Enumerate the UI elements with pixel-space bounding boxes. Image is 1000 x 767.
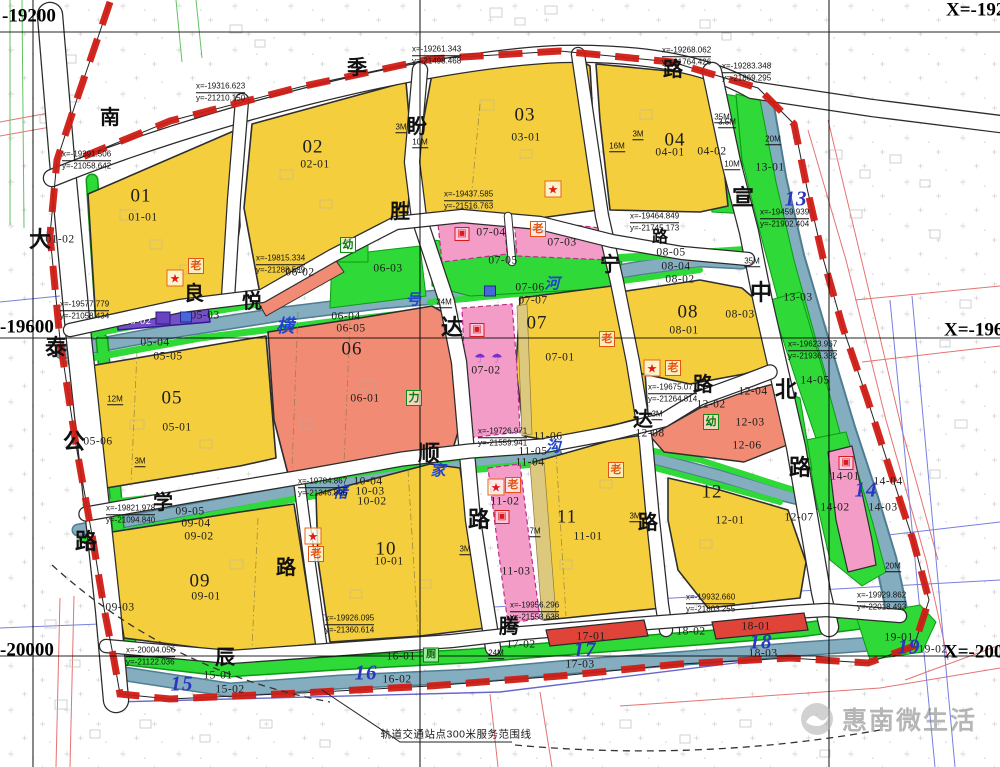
coord-annotation: x=-19675.077y=-21264.814: [648, 382, 697, 404]
block-label: 05-05: [153, 351, 182, 363]
coord-annotation: x=-19784.867y=-21346.896: [298, 476, 347, 498]
block-label: 12-03: [735, 417, 764, 429]
road-name-char: 路: [789, 457, 811, 479]
coord-annotation: x=-19464.849y=-21745.173: [630, 211, 679, 233]
block-label: 07-03: [547, 237, 576, 249]
block-label: 08-01: [669, 325, 698, 337]
coord-annotation: x=-19821.978y=-21094.840: [106, 503, 155, 525]
grid-coordinate-label: -19600: [0, 318, 54, 337]
block-label: 11-03: [502, 566, 531, 578]
block-label: 07-04: [476, 227, 505, 239]
dimension-label: 12M: [107, 395, 123, 405]
block-label: 17-02: [506, 639, 535, 651]
block-label: 07-01: [545, 352, 574, 364]
block-label: 09-04: [181, 518, 210, 530]
block-label: 08: [678, 303, 699, 322]
block-label: 08-05: [656, 247, 685, 259]
block-label: 10-04: [353, 476, 382, 488]
block-label: 14-03: [868, 502, 897, 514]
elder-care-icon: 老: [599, 331, 615, 347]
block-label: 06-03: [373, 263, 402, 275]
block-label: 17-03: [565, 659, 594, 671]
facility-box-icon: ▣: [455, 227, 470, 241]
coord-annotation: x=-19932.660y=-21803.255: [686, 592, 735, 614]
block-label: 04-01: [655, 147, 684, 159]
elder-care-icon: 老: [505, 477, 521, 493]
block-label: 15: [171, 674, 194, 695]
coord-annotation: x=-20004.056y=-21122.036: [126, 645, 175, 667]
block-label: 14-02: [820, 502, 849, 514]
grid-coordinate-label: -19200: [2, 7, 56, 26]
dome-icon: ☂: [474, 352, 486, 365]
block-label: 03: [515, 106, 536, 125]
block-label: 11-04: [516, 457, 545, 469]
road-name-char: 达: [633, 410, 653, 430]
road-name-char: 公: [63, 431, 85, 453]
road-name-char: 宁: [600, 255, 620, 275]
facility-box-icon: ▣: [839, 456, 854, 470]
dimension-label: 20M: [765, 135, 781, 145]
block-label: 10-01: [374, 556, 403, 568]
facility-box-icon: ▣: [495, 510, 510, 524]
dimension-label: 24M: [488, 649, 504, 659]
coord-annotation: x=-19623.967y=-21936.382: [788, 339, 837, 361]
coord-annotation: x=-19316.623y=-21210.150: [196, 81, 245, 103]
coord-annotation: x=-19815.334y=-21288.589: [256, 253, 305, 275]
road-name-char: 胜: [390, 202, 410, 222]
dimension-label: 3M: [651, 410, 662, 420]
road-name-char: 良: [184, 284, 204, 304]
block-label: 15-01: [203, 670, 232, 682]
elder-care-icon: 老: [665, 360, 681, 376]
block-label: 06-04: [331, 311, 360, 323]
block-label: 05-04: [140, 337, 169, 349]
river-name-char: 横: [276, 317, 294, 335]
road-name-char: 北: [775, 379, 797, 401]
block-label: 15-02: [215, 684, 244, 696]
block-label: 12-02: [696, 399, 725, 411]
dimension-label: 3M: [395, 123, 406, 133]
coord-annotation: x=-19459.939y=-21902.404: [760, 207, 809, 229]
block-label: 16-02: [382, 674, 411, 686]
block-label: 01-01: [128, 212, 157, 224]
dimension-label: 10M: [724, 160, 740, 170]
block-label: 06-05: [336, 323, 365, 335]
block-label: 05-03: [190, 310, 219, 322]
coord-annotation: x=-19268.062y=-21764.426: [662, 45, 711, 67]
block-label: 11-05: [519, 446, 548, 458]
block-label: 02: [303, 138, 324, 157]
block-label: 05-06: [83, 436, 112, 448]
block-label: 07-06: [515, 282, 544, 294]
elder-care-icon: 老: [530, 221, 546, 237]
star-landmark-icon: ★: [545, 181, 562, 198]
coord-annotation: x=-19956.296y=-21553.638: [510, 600, 559, 622]
block-label: 11-01: [574, 531, 603, 543]
block-label: 11: [557, 508, 577, 527]
coord-annotation: x=-19283.348y=-21869.295: [722, 61, 771, 83]
block-label: 07: [527, 314, 548, 333]
block-label: 16: [355, 663, 378, 684]
substation-icon: [156, 312, 171, 325]
coord-annotation: x=-19437.585y=-21516.763: [444, 189, 493, 211]
block-label: 09-05: [175, 506, 204, 518]
block-label: 03-01: [511, 132, 540, 144]
river-name-char: 河: [544, 278, 559, 293]
star-landmark-icon: ★: [488, 479, 505, 496]
utility-box-icon: [180, 312, 192, 323]
road-name-char: 路: [638, 513, 658, 533]
elder-care-icon: 老: [308, 546, 324, 562]
block-label: 12-07: [784, 512, 813, 524]
kindergarten-icon: 幼: [703, 414, 719, 430]
block-label: 06-01: [350, 393, 379, 405]
road-name-char: 大: [29, 229, 51, 251]
block-label: 12-06: [732, 440, 761, 452]
block-label: 07-07: [518, 295, 547, 307]
grid-coordinate-label: X=-19600: [944, 321, 1000, 340]
coord-annotation: x=-19391.506y=-21058.642: [62, 149, 111, 171]
block-label: 08-02: [665, 274, 694, 286]
road-name-char: 路: [276, 558, 296, 578]
dimension-label: 20M: [885, 562, 901, 572]
block-label: 09-02: [184, 531, 213, 543]
road-name-char: 学: [153, 493, 173, 513]
river-name-char: 号: [405, 294, 420, 309]
road-name-char: 中: [750, 282, 772, 304]
block-label: 12: [702, 483, 723, 502]
watermark: 惠南微生活: [798, 700, 977, 738]
road-name-char: 季: [347, 58, 367, 78]
grid-coordinate-label: X=-19200: [946, 1, 1000, 20]
dimension-label: 10M: [412, 138, 428, 148]
block-label: 08-03: [725, 309, 754, 321]
star-landmark-icon: ★: [167, 270, 184, 287]
block-label: 14-05: [800, 375, 829, 387]
dimension-label: 3M: [134, 457, 145, 467]
block-label: 05: [162, 389, 183, 408]
block-label: 07-05: [488, 255, 517, 267]
planning-map: 0102030405060708091011121314151617181901…: [0, 0, 1000, 767]
road-name-char: 达: [441, 317, 463, 339]
kindergarten-icon: 幼: [340, 237, 356, 253]
block-label: 18-01: [741, 621, 770, 633]
block-label: 09-03: [105, 602, 134, 614]
public-toilet-icon: 厕: [423, 648, 439, 663]
facility-box-icon: ▣: [470, 323, 485, 337]
block-label: 07-02: [471, 365, 500, 377]
block-label: 14-01: [830, 471, 859, 483]
star-landmark-icon: ★: [305, 528, 322, 545]
dimension-label: 3M: [632, 130, 643, 140]
dimension-label: 24M: [436, 298, 452, 308]
grid-coordinate-label: -20000: [0, 641, 54, 660]
dimension-label: 35M: [714, 113, 730, 123]
block-label: 10-03: [355, 486, 384, 498]
block-label: 05-01: [162, 422, 191, 434]
block-label: 16-01: [386, 651, 415, 663]
grid-coordinate-label: X=-20000: [944, 643, 1000, 662]
block-label: 11-02: [491, 496, 520, 508]
road-name-char: 路: [468, 509, 490, 531]
watermark-logo-icon: [798, 700, 836, 738]
road-name-char: 辰: [215, 648, 235, 668]
block-label: 18-02: [676, 626, 705, 638]
block-label: 19-01: [884, 632, 913, 644]
dimension-label: 3M: [629, 512, 640, 522]
block-label: 08-04: [661, 261, 690, 273]
block-label: 18-03: [748, 648, 777, 660]
block-label: 09: [190, 572, 211, 591]
block-label: 13-01: [755, 162, 784, 174]
block-label: 09-01: [191, 591, 220, 603]
block-label: 05-02: [125, 317, 152, 328]
road-name-char: 顺: [418, 443, 440, 465]
service-range-note: 轨道交通站点300米服务范围线: [380, 727, 531, 742]
block-label: 10-02: [357, 496, 386, 508]
coord-annotation: x=-19726.971y=-21559.941: [478, 426, 527, 448]
star-landmark-icon: ★: [644, 360, 661, 377]
road-name-char: 泰: [45, 337, 67, 359]
coord-annotation: x=-19929.862y=-22018.493: [857, 590, 906, 612]
dome-icon: ☂: [491, 352, 503, 365]
road-name-char: 路: [75, 531, 97, 553]
block-label: 14-04: [873, 476, 902, 488]
block-label: 12-01: [715, 515, 744, 527]
utility-box-icon: [484, 286, 496, 297]
road-name-char: 悦: [242, 292, 262, 312]
coord-annotation: x=-19577.779y=-21058.434: [60, 299, 109, 321]
watermark-text: 惠南微生活: [842, 701, 977, 737]
li-facility-icon: 力: [406, 390, 422, 406]
coord-annotation: x=-19926.095y=-21360.614: [325, 613, 374, 635]
dimension-label: 16M: [609, 142, 625, 152]
block-label: 04-02: [697, 146, 726, 158]
coord-annotation: x=-19261.343y=-21498.468: [412, 44, 461, 66]
dimension-label: 7M: [529, 527, 540, 537]
road-name-char: 南: [100, 108, 120, 128]
dimension-label: 35M: [744, 257, 760, 267]
river-name-char: 家: [430, 465, 445, 480]
elder-care-icon: 老: [188, 258, 204, 274]
river-name-char: 沟: [545, 441, 560, 456]
road-name-char: 盼: [407, 117, 427, 137]
block-label: 01: [131, 187, 152, 206]
block-label: 02-01: [300, 159, 329, 171]
elder-care-icon: 老: [608, 462, 624, 478]
road-name-char: 宣: [732, 187, 754, 209]
map-label-layer: 0102030405060708091011121314151617181901…: [0, 0, 1000, 767]
block-label: 12-04: [738, 386, 767, 398]
block-label: 17-01: [576, 631, 605, 643]
block-label: 06: [342, 340, 363, 359]
block-label: 13-03: [783, 292, 812, 304]
dimension-label: 3M: [459, 545, 470, 555]
